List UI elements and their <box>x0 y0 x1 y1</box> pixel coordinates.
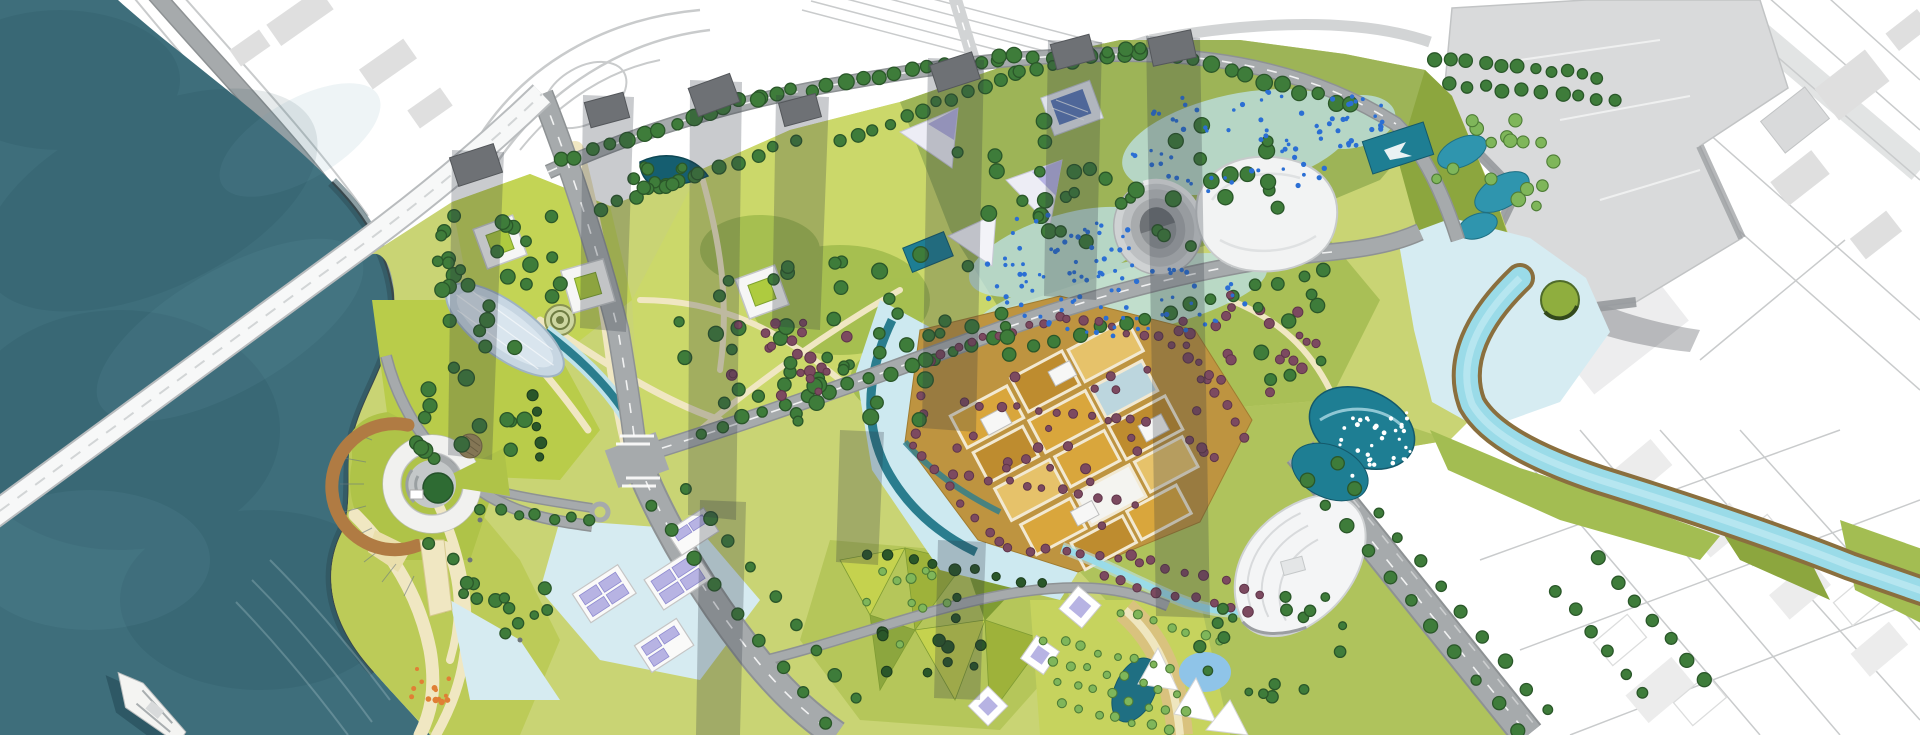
masterplan-canvas <box>0 0 1920 735</box>
exhibition-hall <box>1196 157 1337 272</box>
masterplan-rendering-viewport <box>0 0 1920 735</box>
green-mound <box>1541 281 1579 319</box>
